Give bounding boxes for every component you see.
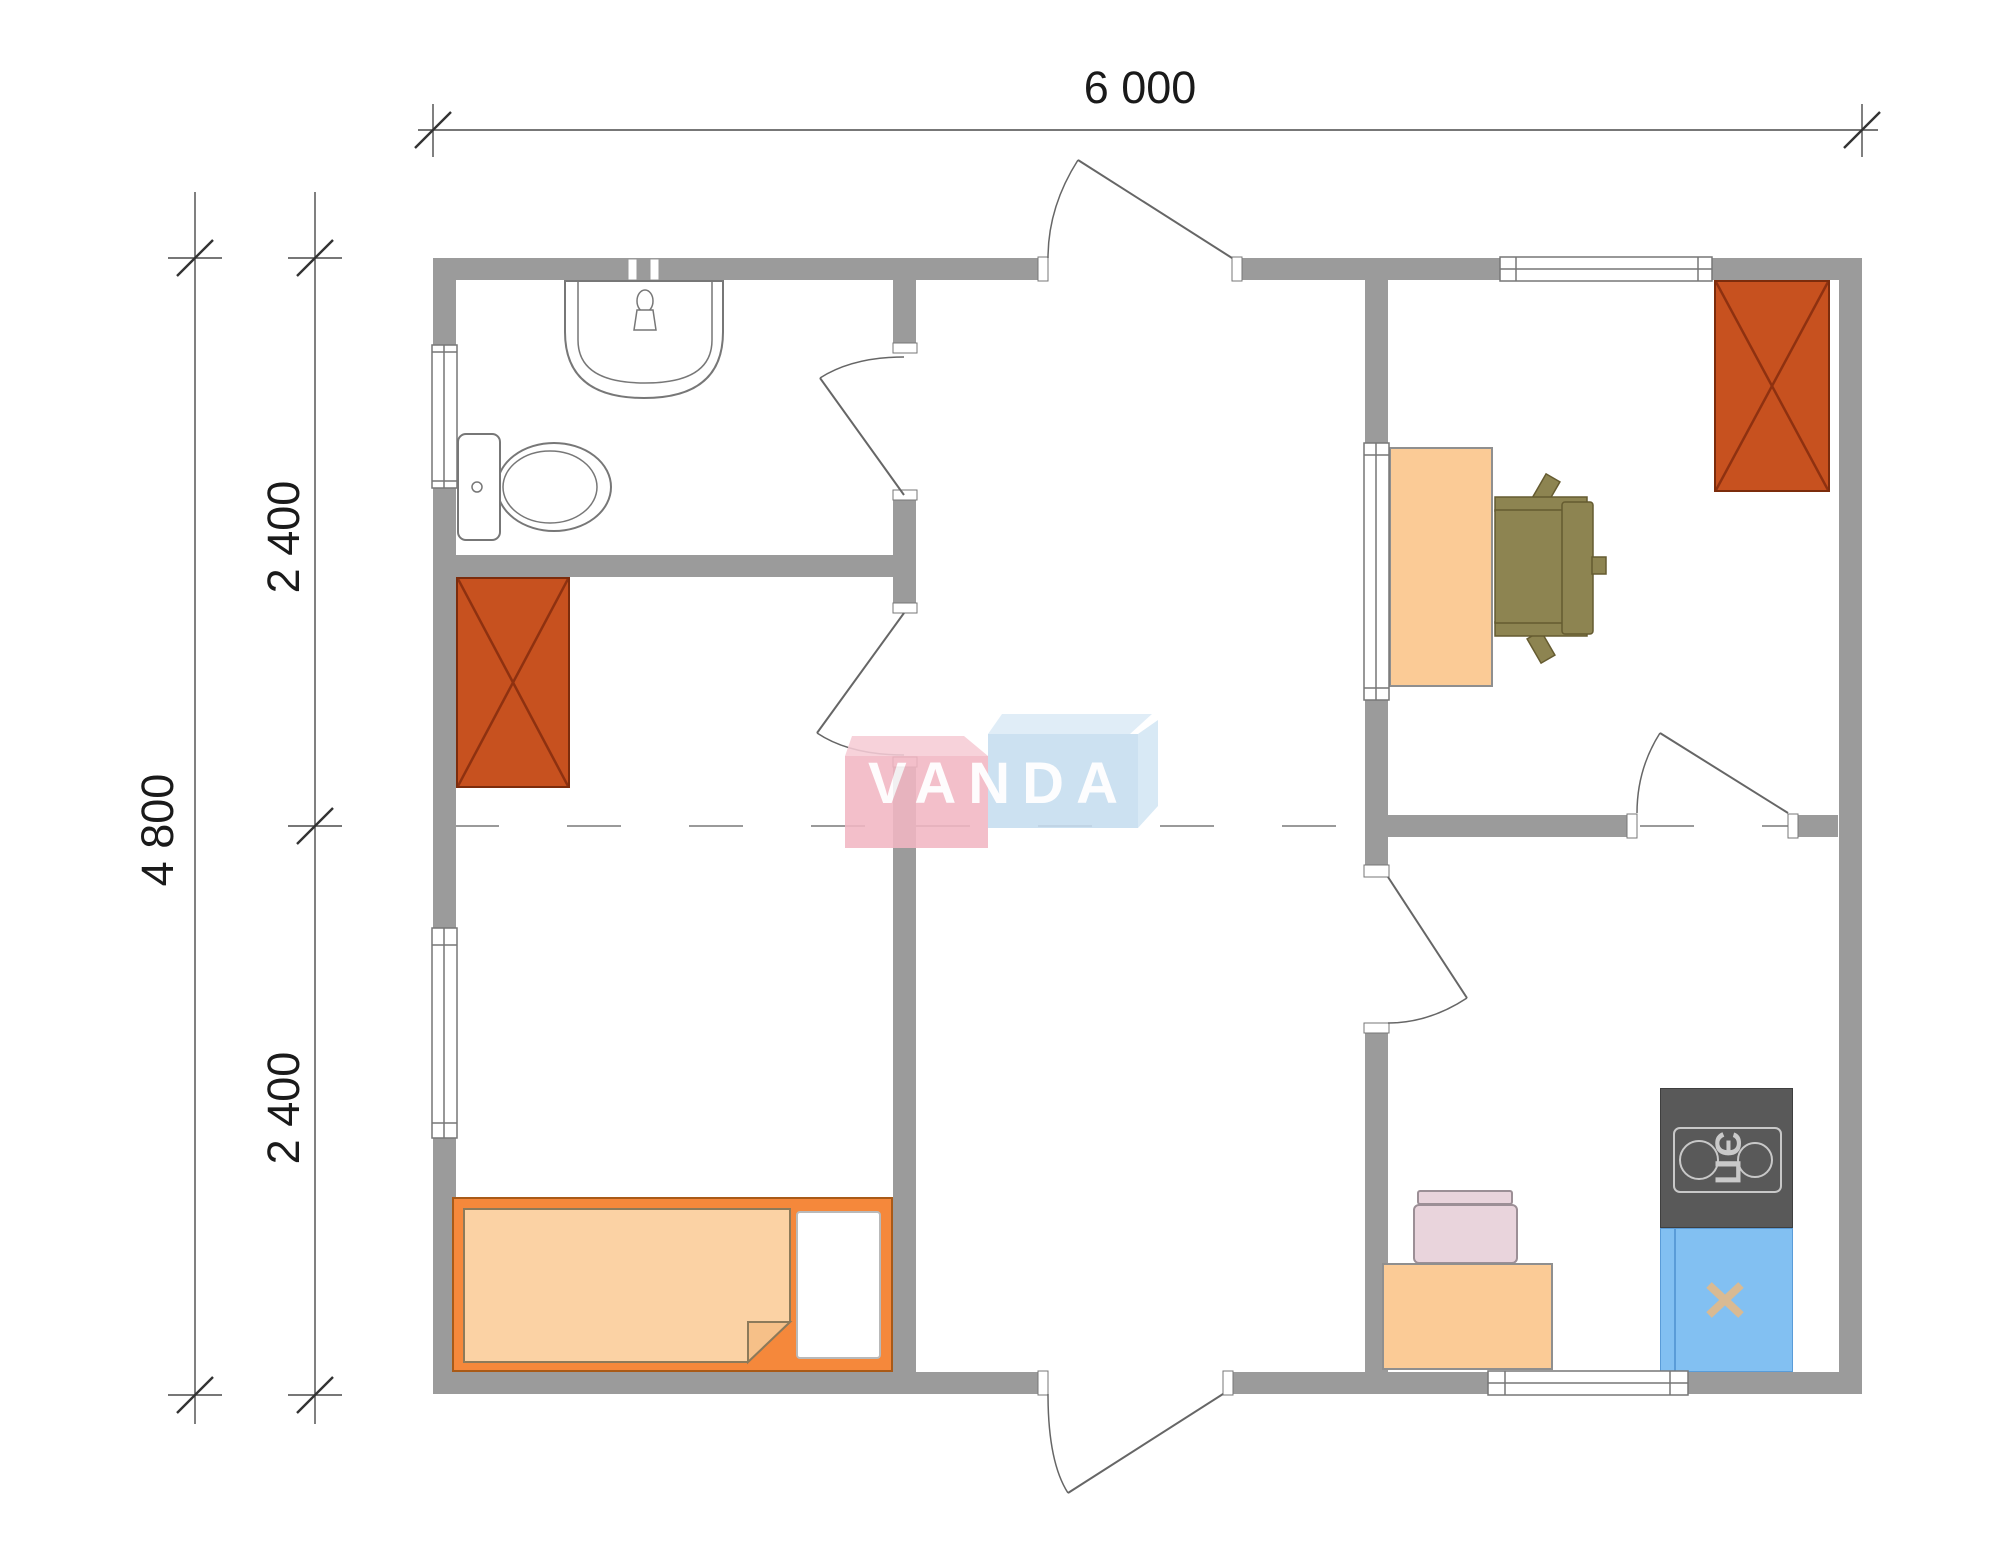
- wall-kitchen-vertical-upper: [1365, 837, 1388, 865]
- kitchen-chair-seat: [1413, 1204, 1518, 1264]
- wardrobe-left: [456, 577, 570, 788]
- kitchen-chair-back: [1417, 1190, 1513, 1205]
- chair-backrest: [1562, 502, 1593, 634]
- stove-label: ЭП: [1686, 1093, 1770, 1226]
- door-entrance-top: [1048, 160, 1232, 258]
- wall-divider-left: [1365, 815, 1627, 837]
- bed-blanket-fold: [748, 1322, 790, 1362]
- dimension-width-total: 6 000: [1084, 62, 1197, 114]
- door-entrance-bottom: [1048, 1394, 1223, 1493]
- dimension-height-total: 4 800: [132, 774, 184, 887]
- wall-left-upper: [433, 258, 456, 345]
- wall-hall-vertical-upper: [893, 577, 916, 603]
- chair-seat: [1495, 510, 1563, 623]
- study-desk: [1389, 447, 1493, 687]
- wall-bathroom-bottom: [433, 555, 916, 577]
- wall-right: [1839, 258, 1862, 1394]
- wall-bathroom-vertical-lower: [893, 500, 916, 555]
- wall-bottom-middle: [1233, 1372, 1488, 1394]
- floor-plan: ЭП: [0, 0, 2000, 1563]
- bed-pillow: [797, 1212, 880, 1358]
- window-left-bathroom: [432, 345, 457, 488]
- window-bottom-kitchen: [1488, 1371, 1688, 1395]
- window-left-bedroom: [432, 928, 457, 1138]
- wall-left-middle: [433, 488, 456, 928]
- wall-bathroom-vertical-upper: [893, 280, 916, 343]
- wall-study-vertical-upper: [1365, 280, 1388, 443]
- kitchen-table: [1382, 1263, 1553, 1370]
- door-study: [1637, 733, 1788, 813]
- faucet-icon: [637, 290, 653, 312]
- stove: ЭП: [1660, 1088, 1793, 1228]
- bed: [452, 1197, 893, 1372]
- watermark-text: VANDA: [838, 750, 1160, 817]
- toilet-tank: [458, 434, 500, 540]
- dimension-height-lower: 2 400: [258, 1052, 310, 1165]
- wall-divider-right: [1798, 815, 1838, 837]
- chair-leg: [1532, 474, 1560, 506]
- wardrobe-cross-icon: [1716, 282, 1828, 490]
- bed-blanket: [464, 1209, 790, 1362]
- door-kitchen: [1388, 877, 1467, 1023]
- window-top-study: [1500, 257, 1712, 281]
- wall-top-left: [433, 258, 1038, 280]
- window-interior-study: [1364, 443, 1389, 700]
- door-bathroom: [820, 357, 904, 495]
- wall-study-vertical-lower: [1365, 700, 1388, 815]
- kitchen-sink-unit: [1660, 1228, 1793, 1372]
- toilet: [458, 434, 611, 540]
- dimension-height-upper: 2 400: [258, 481, 310, 594]
- wall-bottom-left: [433, 1372, 1038, 1394]
- wall-hall-vertical-lower: [893, 767, 916, 1372]
- flush-button-icon: [472, 482, 482, 492]
- chair-armrest: [1495, 622, 1587, 636]
- watermark-blue-box-top: [988, 714, 1152, 734]
- wardrobe-cross-icon: [458, 579, 568, 786]
- wardrobe-right: [1714, 280, 1830, 492]
- office-chair: [1495, 474, 1606, 663]
- chair-lever: [1592, 557, 1606, 574]
- bed-details: [454, 1199, 891, 1370]
- wall-bottom-right: [1688, 1372, 1862, 1394]
- wall-top-middle: [1242, 258, 1500, 280]
- sink-cross-icon: [1709, 1285, 1741, 1315]
- sink-unit-details: [1661, 1229, 1794, 1373]
- vanda-watermark: VANDA: [838, 706, 1160, 852]
- chair-armrest: [1495, 497, 1587, 511]
- chair-leg: [1527, 631, 1555, 663]
